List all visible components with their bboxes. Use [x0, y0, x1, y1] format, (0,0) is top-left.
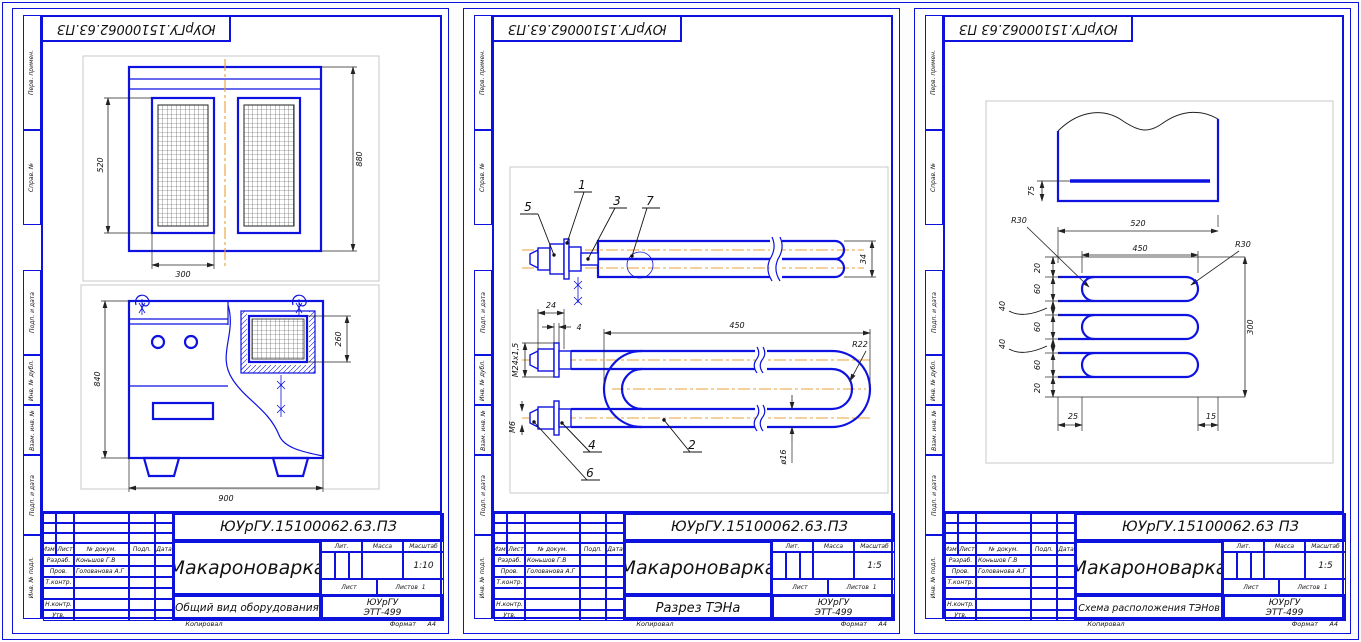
margin-cell-perv-primen: Перв. примен. — [474, 15, 492, 130]
ten-element-1 — [1082, 277, 1198, 301]
margin-cell-podp-data-2: Подп. и дата — [23, 455, 41, 535]
tb-utv: Утв. — [494, 610, 525, 621]
margin-label: Подп. и дата — [29, 292, 36, 333]
dim-r30-left: R30 — [1011, 216, 1027, 225]
margin-cell-podp-data-2: Подп. и дата — [474, 455, 492, 535]
u-view: М24х1,5 24 4 450 R22 ø16 М6 4 6 2 — [508, 301, 872, 480]
tb-col-ndok: № докум. — [976, 543, 1031, 555]
dim-24: 24 — [546, 301, 556, 310]
dim-o16: ø16 — [779, 449, 788, 465]
margin-label: Подп. и дата — [480, 292, 487, 333]
margin-label: Подп. и дата — [931, 475, 938, 516]
below-frame: Копировал Формат А4 — [41, 620, 442, 634]
margin-label: Инв. № подл. — [480, 556, 487, 597]
tb-col-podp: Подп. — [1031, 543, 1057, 555]
basket-left-mesh — [158, 105, 208, 226]
doc-number: ЮУрГУ.15100062.63.ПЗ — [624, 513, 895, 541]
tb-massa: Масса — [813, 541, 854, 552]
margin-label: Подп. и дата — [29, 475, 36, 516]
margin-label: Инв. № дубл. — [480, 359, 487, 400]
tb-masshtab: Масштаб — [403, 541, 444, 552]
tb-listov: Листов 1 — [1279, 579, 1346, 595]
kopiroval-label: Копировал — [636, 620, 673, 628]
scale-value: 1:5 — [1305, 552, 1346, 579]
scale-value: 1:5 — [854, 552, 895, 579]
org-cell: ЮУрГУЭТТ-499 — [1223, 595, 1346, 621]
org-cell: ЮУрГУЭТТ-499 — [772, 595, 895, 621]
drawing-ten-section: 5 1 3 7 34 — [492, 15, 893, 511]
view-frame-top — [83, 56, 379, 281]
drawing-ten-layout: 75 520 450 R30 R30 — [943, 15, 1344, 511]
dim-900: 900 — [218, 494, 233, 503]
section-basket-mesh — [252, 319, 304, 359]
format-value: А4 — [878, 620, 887, 628]
tb-prov: Пров. — [494, 566, 525, 577]
ten-plan-view: 520 450 R30 R30 — [998, 215, 1255, 431]
margin-label: Взам. инв. № — [29, 410, 36, 451]
margin-cell-podp-data-1: Подп. и дата — [23, 270, 41, 355]
knob-right — [185, 336, 197, 348]
top-stamp-text: ЮУрГУ.15100062.63.ПЗ — [57, 21, 216, 36]
dim-450: 450 — [1132, 244, 1147, 253]
knob-left — [152, 336, 164, 348]
dim-20-bottom: 20 — [1033, 383, 1042, 393]
dim-520: 520 — [1130, 219, 1145, 228]
dim-75: 75 — [1027, 186, 1036, 196]
tb-prov: Пров. — [945, 566, 976, 577]
drawing-general-view: 520 880 300 — [41, 15, 442, 511]
fitting-upper — [530, 343, 571, 377]
tb-col-ndok: № докум. — [74, 543, 129, 555]
margin-label: Справ. № — [931, 163, 938, 192]
drawing-subtitle: Разрез ТЭНа — [624, 595, 772, 621]
tb-col-podp: Подп. — [129, 543, 155, 555]
tb-col-ndok: № докум. — [525, 543, 580, 555]
drawing-title: Макароноварка — [173, 541, 321, 595]
margin-cell-podp-data-1: Подп. и дата — [925, 270, 943, 355]
tb-col-izm: Изм. — [945, 543, 958, 555]
dim-880: 880 — [355, 151, 364, 166]
ten-element-3 — [1082, 353, 1198, 377]
dim-15: 15 — [1206, 412, 1216, 421]
fitting-lower — [530, 401, 571, 435]
margin-label: Подп. и дата — [480, 475, 487, 516]
tb-col-list: Лист — [507, 543, 525, 555]
margin-cell-inv-podl: Инв. № подл. — [925, 535, 943, 619]
drawing-title: Макароноварка — [624, 541, 772, 595]
view-frame — [986, 101, 1333, 463]
dim-r22: R22 — [852, 340, 868, 349]
callout-6: 6 — [586, 466, 594, 480]
tb-razrab-name: Коньшов Г.В — [976, 555, 1031, 566]
tb-tkontr: Т.контр. — [43, 577, 74, 588]
top-stamp-text: ЮУрГУ.15100062.63.ПЗ — [508, 21, 667, 36]
tb-col-podp: Подп. — [580, 543, 606, 555]
below-frame: Копировал Формат А4 — [492, 620, 893, 634]
margin-cell-inv-dubl: Инв. № дубл. — [474, 355, 492, 405]
ten-element-2 — [1082, 315, 1198, 339]
tb-col-data: Дата — [606, 543, 624, 555]
dim-60-1: 60 — [1033, 284, 1042, 294]
dim-40-1: 40 — [998, 301, 1007, 311]
sheet-ten-layout: Перв. примен. Справ. № Подп. и дата Инв.… — [914, 8, 1351, 634]
doc-number: ЮУрГУ.15100062.63.ПЗ — [173, 513, 444, 541]
tb-list2: Лист — [321, 579, 377, 595]
margin-cell-podp-data-1: Подп. и дата — [474, 270, 492, 355]
dim-40-2: 40 — [998, 339, 1007, 349]
tb-nkontr: Н.контр. — [494, 599, 525, 610]
tb-list2: Лист — [1223, 579, 1279, 595]
tb-prov-name: Голованова А.Г — [525, 566, 580, 577]
dim-4: 4 — [576, 323, 581, 332]
dim-m6: М6 — [508, 421, 517, 433]
margin-cell-sprav: Справ. № — [474, 130, 492, 225]
callout-3: 3 — [613, 194, 621, 208]
margin-cell-perv-primen: Перв. примен. — [925, 15, 943, 130]
tb-prov-name: Голованова А.Г — [74, 566, 129, 577]
dim-450: 450 — [729, 321, 744, 330]
margin-label: Перв. примен. — [480, 50, 487, 95]
dim-m24: М24х1,5 — [511, 343, 520, 378]
top-stamp: ЮУрГУ.15100062.63.ПЗ — [492, 15, 682, 42]
dim-25: 25 — [1068, 412, 1078, 421]
margin-cell-inv-dubl: Инв. № дубл. — [23, 355, 41, 405]
tb-nkontr: Н.контр. — [43, 599, 74, 610]
callout-2: 2 — [688, 438, 696, 452]
drawing-subtitle: Схема расположения ТЭНов — [1075, 595, 1223, 621]
dim-20-top: 20 — [1033, 263, 1042, 273]
dim-60-3: 60 — [1033, 360, 1042, 370]
format-label: Формат — [1292, 620, 1318, 628]
title-block: Изм. Лист № докум. Подп. Дата Разраб. Ко… — [943, 511, 1344, 619]
callout-5: 5 — [524, 200, 532, 214]
tb-massa: Масса — [362, 541, 403, 552]
kopiroval-label: Копировал — [1087, 620, 1124, 628]
drawer-panel — [153, 403, 213, 419]
top-stamp-text: ЮУрГУ.15100062.63 ПЗ — [959, 21, 1118, 36]
view-frame — [510, 167, 888, 493]
basket-right-mesh — [244, 105, 294, 226]
tb-utv: Утв. — [43, 610, 74, 621]
margin-label: Инв. № подл. — [931, 556, 938, 597]
margin-label: Перв. примен. — [29, 50, 36, 95]
valve-drain — [277, 375, 285, 417]
tb-tkontr: Т.контр. — [945, 577, 976, 588]
margin-cell-vzam-inv: Взам. инв. № — [925, 405, 943, 455]
margin-cell-podp-data-2: Подп. и дата — [925, 455, 943, 535]
margin-cell-vzam-inv: Взам. инв. № — [23, 405, 41, 455]
side-view: 5 1 3 7 34 — [520, 178, 876, 305]
margin-cell-sprav: Справ. № — [23, 130, 41, 225]
tb-col-list: Лист — [958, 543, 976, 555]
sheet-general-view: Перв. примен. Справ. № Подп. и дата Инв.… — [12, 8, 449, 634]
margin-label: Перв. примен. — [931, 50, 938, 95]
tb-col-list: Лист — [56, 543, 74, 555]
margin-label: Инв. № дубл. — [931, 359, 938, 400]
tb-col-data: Дата — [1057, 543, 1075, 555]
drawing-subtitle: Общий вид оборудования — [173, 595, 321, 621]
tb-col-data: Дата — [155, 543, 173, 555]
dim-r30-right: R30 — [1235, 240, 1251, 249]
dim-34: 34 — [859, 254, 868, 264]
margin-label: Взам. инв. № — [480, 410, 487, 451]
tb-col-izm: Изм. — [494, 543, 507, 555]
top-stamp: ЮУрГУ.15100062.63 ПЗ — [943, 15, 1133, 42]
top-stamp: ЮУрГУ.15100062.63.ПЗ — [41, 15, 231, 42]
margin-cell-inv-podl: Инв. № подл. — [23, 535, 41, 619]
callout-7: 7 — [646, 194, 654, 208]
tb-list2: Лист — [772, 579, 828, 595]
tb-lit: Лит. — [1223, 541, 1264, 552]
stud — [574, 277, 582, 305]
callout-1: 1 — [578, 178, 586, 192]
leg-right — [273, 458, 308, 476]
dim-520: 520 — [96, 157, 105, 172]
tb-lit: Лит. — [321, 541, 362, 552]
tb-masshtab: Масштаб — [1305, 541, 1346, 552]
margin-label: Справ. № — [480, 163, 487, 192]
tb-lit: Лит. — [772, 541, 813, 552]
tb-listov: Листов 1 — [377, 579, 444, 595]
format-label: Формат — [390, 620, 416, 628]
margin-cell-inv-podl: Инв. № подл. — [474, 535, 492, 619]
leg-left — [144, 458, 179, 476]
doc-number: ЮУрГУ.15100062.63 ПЗ — [1075, 513, 1346, 541]
title-block: Изм. Лист № докум. Подп. Дата Разраб. Ко… — [41, 511, 442, 619]
scale-value: 1:10 — [403, 552, 444, 579]
title-block: Изм. Лист № докум. Подп. Дата Разраб. Ко… — [492, 511, 893, 619]
margin-cell-vzam-inv: Взам. инв. № — [474, 405, 492, 455]
margin-label: Подп. и дата — [931, 292, 938, 333]
tb-prov-name: Голованова А.Г — [976, 566, 1031, 577]
format-value: А4 — [427, 620, 436, 628]
margin-label: Справ. № — [29, 163, 36, 192]
tb-massa: Масса — [1264, 541, 1305, 552]
tb-razrab-name: Коньшов Г.В — [525, 555, 580, 566]
tb-razrab: Разраб. — [494, 555, 525, 566]
margin-cell-sprav: Справ. № — [925, 130, 943, 225]
margin-cell-perv-primen: Перв. примен. — [23, 15, 41, 130]
drawing-canvas: Перв. примен. Справ. № Подп. и дата Инв.… — [0, 0, 1361, 642]
kopiroval-label: Копировал — [185, 620, 222, 628]
tb-col-izm: Изм. — [43, 543, 56, 555]
tb-utv: Утв. — [945, 610, 976, 621]
tb-tkontr: Т.контр. — [494, 577, 525, 588]
drawing-title: Макароноварка — [1075, 541, 1223, 595]
tb-prov: Пров. — [43, 566, 74, 577]
margin-cell-inv-dubl: Инв. № дубл. — [925, 355, 943, 405]
format-value: А4 — [1329, 620, 1338, 628]
top-view: 520 880 300 — [96, 59, 364, 279]
tb-razrab: Разраб. — [43, 555, 74, 566]
below-frame: Копировал Формат А4 — [943, 620, 1344, 634]
format-label: Формат — [841, 620, 867, 628]
tb-masshtab: Масштаб — [854, 541, 895, 552]
tb-nkontr: Н.контр. — [945, 599, 976, 610]
dim-60-2: 60 — [1033, 322, 1042, 332]
margin-label: Взам. инв. № — [931, 410, 938, 451]
tb-razrab: Разраб. — [945, 555, 976, 566]
margin-label: Инв. № дубл. — [29, 359, 36, 400]
dim-260: 260 — [334, 331, 343, 346]
margin-label: Инв. № подл. — [29, 556, 36, 597]
dim-300: 300 — [175, 270, 190, 279]
front-view: 840 260 900 — [93, 295, 351, 503]
tb-razrab-name: Коньшов Г.В — [74, 555, 129, 566]
callout-4: 4 — [588, 438, 596, 452]
dim-840: 840 — [93, 371, 102, 386]
sheet-ten-section: Перв. примен. Справ. № Подп. и дата Инв.… — [463, 8, 900, 634]
tb-listov: Листов 1 — [828, 579, 895, 595]
tank-side-view: 75 — [1027, 112, 1218, 201]
org-cell: ЮУрГУЭТТ-499 — [321, 595, 444, 621]
dim-300: 300 — [1246, 319, 1255, 334]
